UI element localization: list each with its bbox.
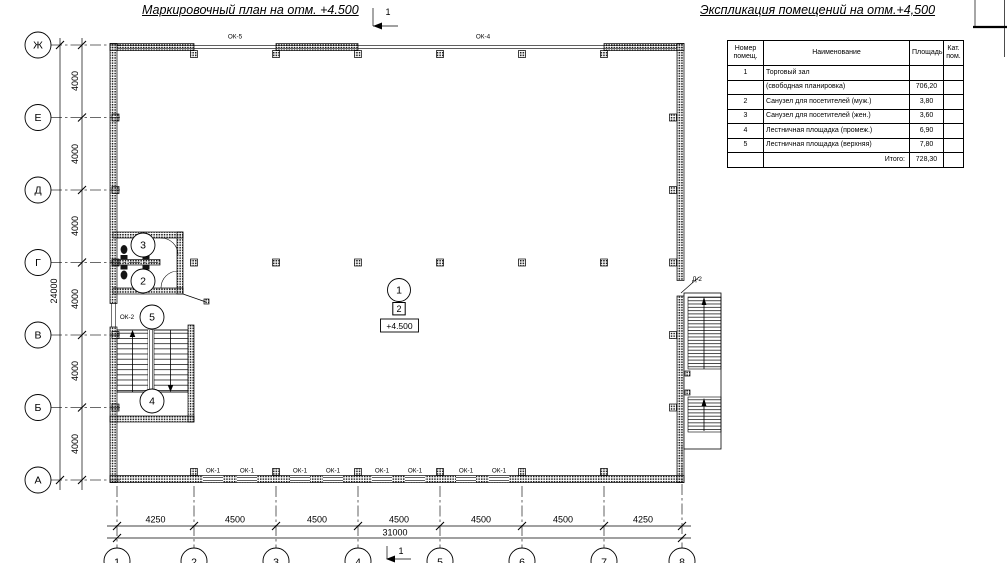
room-cat bbox=[944, 95, 964, 110]
dim-4500-5: 4500 bbox=[553, 515, 573, 525]
row-axis-g: Г bbox=[35, 257, 41, 269]
room-name: Санузел для посетителей (муж.) bbox=[764, 95, 910, 110]
dim-4250-1: 4250 bbox=[145, 515, 165, 525]
room-area: 7,80 bbox=[910, 138, 944, 153]
total-cat bbox=[944, 153, 964, 168]
col-axis-1: 1 bbox=[114, 557, 120, 563]
room-cat bbox=[944, 80, 964, 95]
room-cat bbox=[944, 66, 964, 81]
room-name: Торговый зал bbox=[764, 66, 910, 81]
row-axis-b: Б bbox=[35, 402, 42, 414]
room-number bbox=[728, 80, 764, 95]
room-number: 4 bbox=[728, 124, 764, 139]
dim-4000-5: 4000 bbox=[70, 361, 80, 381]
room-number: 5 bbox=[728, 138, 764, 153]
level-mark: 2 +4.500 bbox=[381, 303, 419, 333]
col-axis-4: 4 bbox=[355, 557, 361, 563]
room-area: 706,20 bbox=[910, 80, 944, 95]
section-label-top: 1 bbox=[385, 7, 390, 17]
window-label-ok1-2: ОК-1 bbox=[240, 468, 255, 475]
window-label-ok1-6: ОК-1 bbox=[408, 468, 423, 475]
room-area: 3,60 bbox=[910, 109, 944, 124]
door-leaf-landing bbox=[183, 294, 206, 302]
window-labels: ОК-5 ОК-4 ОК-1 ОК-1 ОК-1 ОК-1 ОК-1 ОК-1 … bbox=[120, 34, 703, 475]
window-label-ok1-8: ОК-1 bbox=[492, 468, 507, 475]
room-number: 3 bbox=[728, 109, 764, 124]
room-area: 6,90 bbox=[910, 124, 944, 139]
sheet-frame-corner bbox=[973, 0, 1007, 57]
window-label-ok5: ОК-5 bbox=[228, 34, 243, 41]
total-area: 728,30 bbox=[910, 153, 944, 168]
room-cat bbox=[944, 124, 964, 139]
window-label-ok4: ОК-4 bbox=[476, 34, 491, 41]
door-swing-room2 bbox=[161, 271, 178, 288]
total-number bbox=[728, 153, 764, 168]
columns bbox=[112, 51, 677, 476]
window-label-ok1-1: ОК-1 bbox=[206, 468, 221, 475]
dim-4500-4: 4500 bbox=[471, 515, 491, 525]
room-name: Санузел для посетителей (жен.) bbox=[764, 109, 910, 124]
dim-4500-1: 4500 bbox=[225, 515, 245, 525]
schedule-header-cat: Кат. пом. bbox=[944, 41, 964, 66]
schedule-row: 4 Лестничная площадка (промеж.) 6,90 bbox=[728, 124, 964, 139]
room-bubble-2: 2 bbox=[140, 276, 146, 288]
section-arrow-top bbox=[373, 23, 382, 30]
dim-4250-2: 4250 bbox=[633, 515, 653, 525]
room-area bbox=[910, 66, 944, 81]
col-axis-3: 3 bbox=[273, 557, 279, 563]
dim-4000-2: 4000 bbox=[70, 144, 80, 164]
door-swing-room3 bbox=[161, 238, 178, 255]
schedule-header-area: Площадь bbox=[910, 41, 944, 66]
section-label-bottom: 1 bbox=[398, 546, 403, 556]
col-axis-6: 6 bbox=[519, 557, 525, 563]
dim-4000-3: 4000 bbox=[70, 216, 80, 236]
schedule-row: (свободная планировка) 706,20 bbox=[728, 80, 964, 95]
drawing-sheet: Маркировочный план на отм. +4.500 Экспли… bbox=[0, 0, 1007, 563]
section-mark-top: 1 bbox=[373, 7, 398, 30]
schedule-total-row: Итого: 728,30 bbox=[728, 153, 964, 168]
total-label: Итого: bbox=[764, 153, 910, 168]
col-axis-8: 8 bbox=[679, 557, 685, 563]
storey-mark: 2 bbox=[396, 304, 401, 314]
room-number: 2 bbox=[728, 95, 764, 110]
row-axis-a: А bbox=[34, 475, 41, 487]
room-bubble-1: 1 bbox=[396, 285, 402, 297]
room-cat bbox=[944, 138, 964, 153]
schedule-header-row: Номер помещ. Наименование Площадь Кат. п… bbox=[728, 41, 964, 66]
schedule-header-number: Номер помещ. bbox=[728, 41, 764, 66]
window-label-ok1-4: ОК-1 bbox=[326, 468, 341, 475]
schedule-header-name: Наименование bbox=[764, 41, 910, 66]
room-name: Лестничная площадка (промеж.) bbox=[764, 124, 910, 139]
dim-24000: 24000 bbox=[49, 278, 59, 303]
room-schedule-table: Номер помещ. Наименование Площадь Кат. п… bbox=[727, 40, 964, 168]
row-axis-e: Е bbox=[34, 112, 41, 124]
schedule-row: 1 Торговый зал bbox=[728, 66, 964, 81]
room-area: 3,80 bbox=[910, 95, 944, 110]
row-axis-v: В bbox=[34, 330, 41, 342]
door-label-d2: Д-2 bbox=[692, 276, 702, 283]
window-label-ok1-5: ОК-1 bbox=[375, 468, 390, 475]
stair-flight-down bbox=[154, 330, 188, 392]
dim-4000-1: 4000 bbox=[70, 71, 80, 91]
room-bubble-4: 4 bbox=[149, 396, 155, 408]
room-bubble-5: 5 bbox=[149, 312, 155, 324]
col-axis-2: 2 bbox=[191, 557, 197, 563]
schedule-row: 2 Санузел для посетителей (муж.) 3,80 bbox=[728, 95, 964, 110]
schedule-row: 5 Лестничная площадка (верхняя) 7,80 bbox=[728, 138, 964, 153]
schedule-row: 3 Санузел для посетителей (жен.) 3,60 bbox=[728, 109, 964, 124]
dim-4000-6: 4000 bbox=[70, 434, 80, 454]
dim-31000: 31000 bbox=[382, 528, 407, 538]
dim-4500-2: 4500 bbox=[307, 515, 327, 525]
room-name: Лестничная площадка (верхняя) bbox=[764, 138, 910, 153]
window-label-ok1-3: ОК-1 bbox=[293, 468, 308, 475]
window-label-ok1-7: ОК-1 bbox=[459, 468, 474, 475]
room-name: (свободная планировка) bbox=[764, 80, 910, 95]
room-cat bbox=[944, 109, 964, 124]
room-number: 1 bbox=[728, 66, 764, 81]
row-axis-d: Д bbox=[34, 185, 41, 197]
elevation-mark: +4.500 bbox=[386, 321, 413, 331]
col-axis-5: 5 bbox=[437, 557, 443, 563]
dim-4000-4: 4000 bbox=[70, 289, 80, 309]
col-axis-7: 7 bbox=[601, 557, 607, 563]
row-axis-bubbles: Ж Е Д Г В Б А bbox=[25, 32, 51, 493]
external-staircase bbox=[681, 277, 721, 449]
dim-4500-3: 4500 bbox=[389, 515, 409, 525]
row-axis-zh: Ж bbox=[33, 40, 43, 52]
window-label-ok2: ОК-2 bbox=[120, 314, 135, 321]
section-mark-bottom: 1 bbox=[386, 546, 411, 563]
room-bubble-3: 3 bbox=[140, 240, 146, 252]
